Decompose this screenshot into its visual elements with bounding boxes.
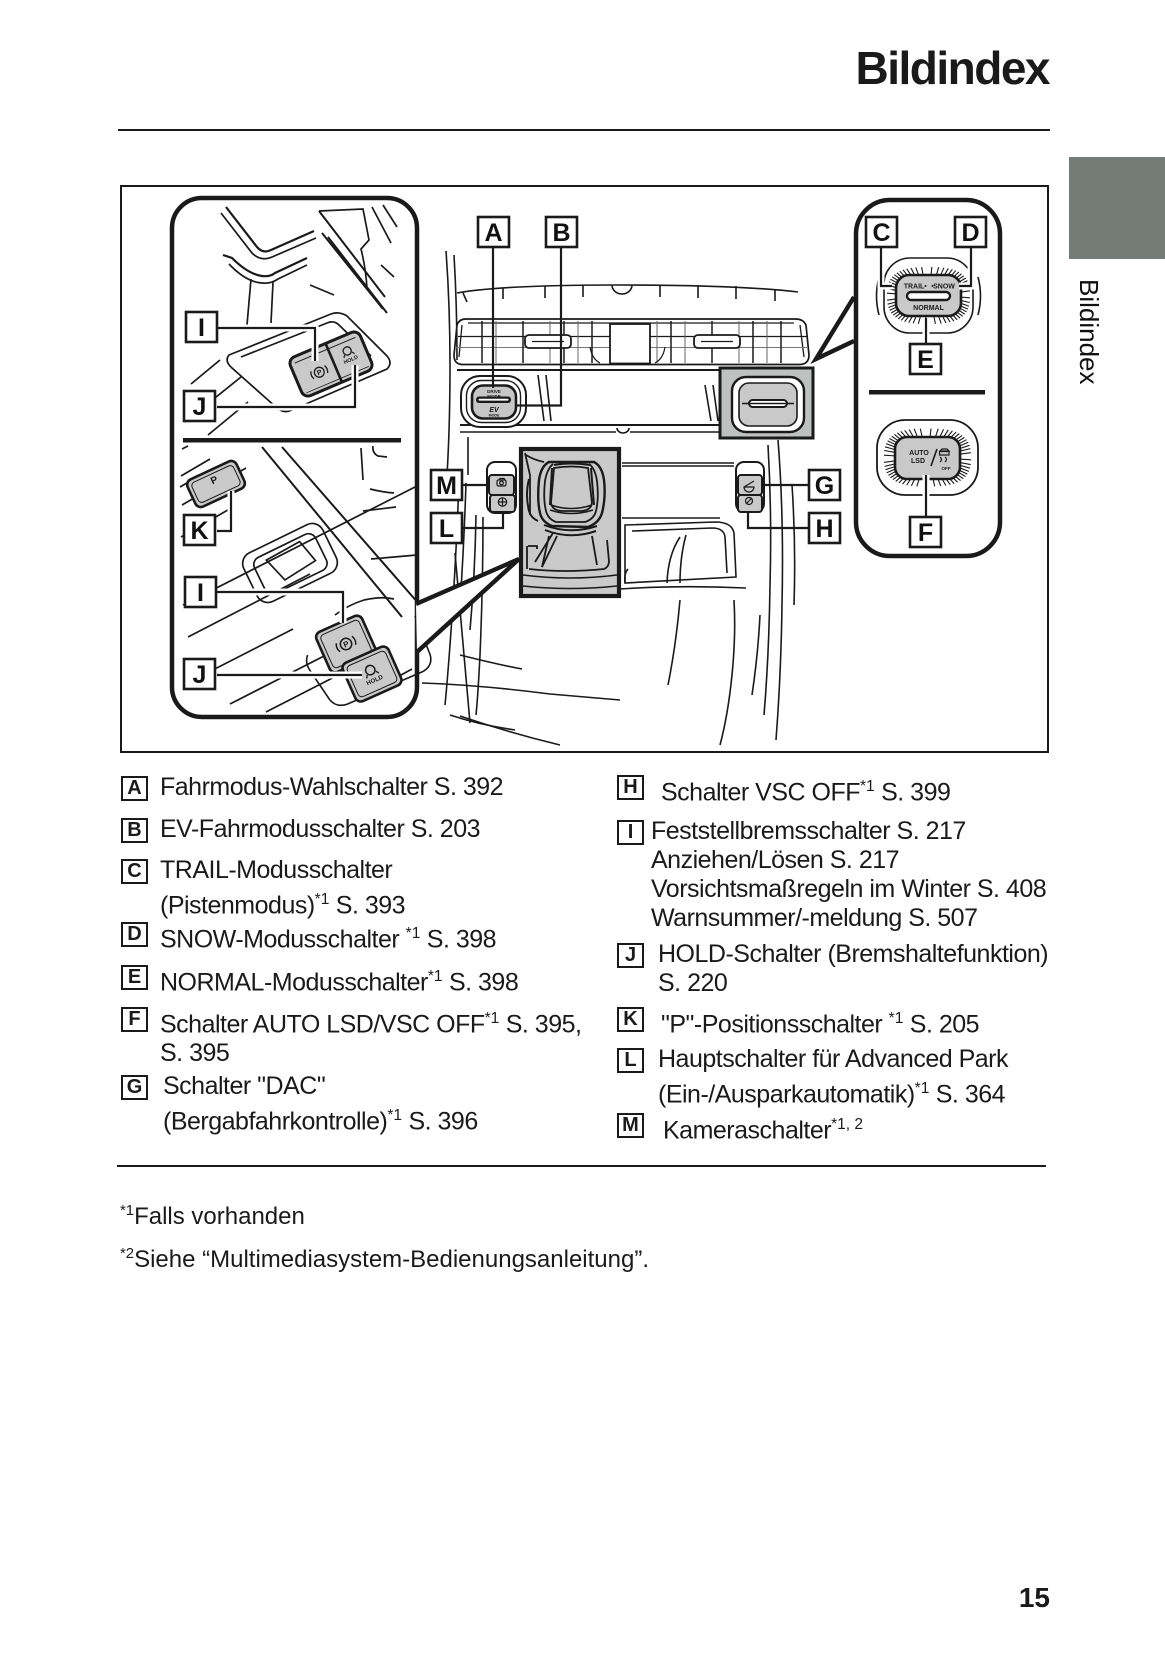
svg-text:I: I <box>197 579 204 607</box>
svg-text:F: F <box>918 519 933 547</box>
svg-text:M: M <box>436 472 457 500</box>
svg-text:LSD: LSD <box>911 458 925 465</box>
svg-text:E: E <box>917 346 934 374</box>
svg-text:AUTO: AUTO <box>909 450 929 457</box>
svg-text:C: C <box>872 219 890 247</box>
svg-text:H: H <box>815 515 833 543</box>
svg-text:I: I <box>198 314 205 342</box>
svg-text:G: G <box>815 472 834 500</box>
svg-text:SNOW: SNOW <box>933 284 955 291</box>
svg-text:NORMAL: NORMAL <box>913 305 944 312</box>
svg-text:B: B <box>552 219 570 247</box>
svg-text:J: J <box>193 393 207 421</box>
svg-text:A: A <box>484 219 502 247</box>
svg-text:TRAIL: TRAIL <box>904 284 925 291</box>
svg-text:L: L <box>439 515 454 543</box>
svg-text:J: J <box>193 661 207 689</box>
svg-text:D: D <box>961 219 979 247</box>
svg-text:K: K <box>190 517 208 545</box>
svg-text:MODE: MODE <box>489 414 500 418</box>
svg-text:OFF: OFF <box>942 466 951 471</box>
